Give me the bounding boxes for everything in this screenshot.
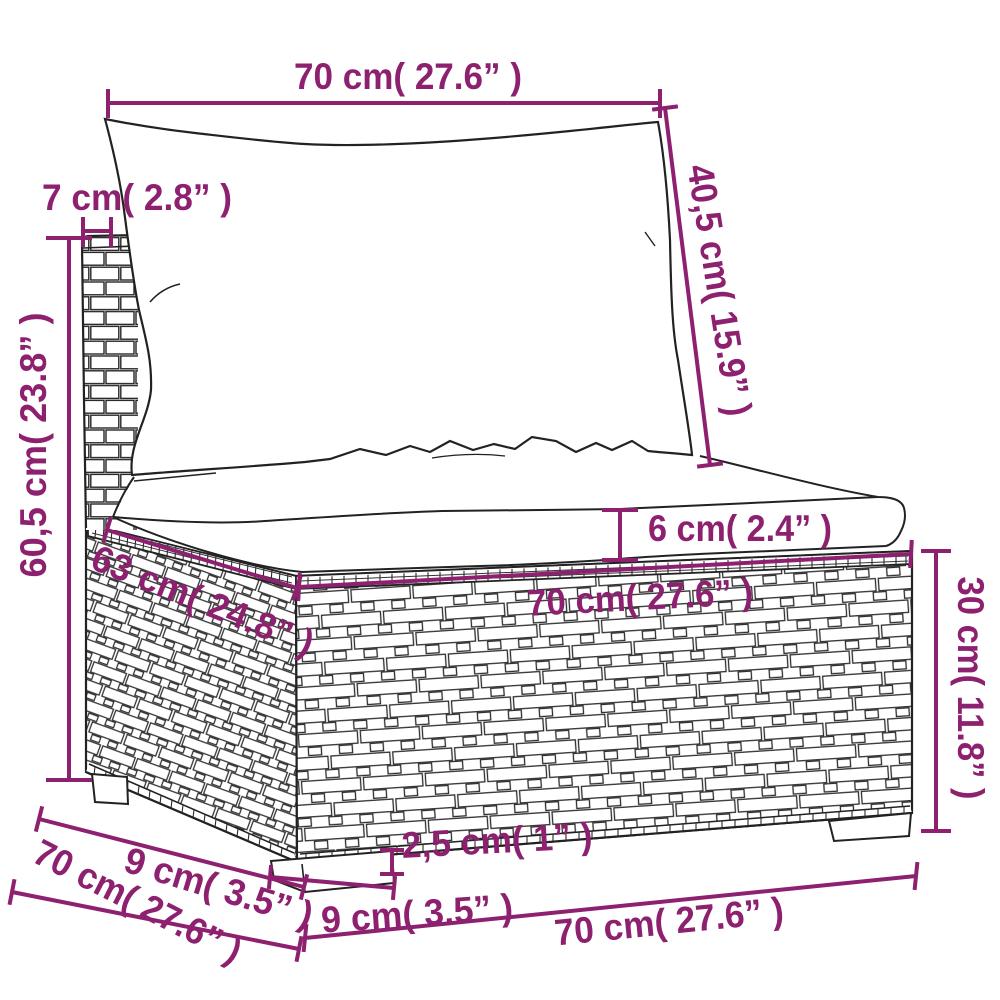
svg-text:60,5 cm( 23.8” ): 60,5 cm( 23.8” ) [13,313,54,578]
svg-text:30 cm( 11.8” ): 30 cm( 11.8” ) [950,577,991,800]
svg-text:6 cm( 2.4” ): 6 cm( 2.4” ) [648,508,832,549]
svg-text:7 cm( 2.8” ): 7 cm( 2.8” ) [42,177,232,218]
svg-text:70 cm( 27.6” ): 70 cm( 27.6” ) [294,56,522,97]
